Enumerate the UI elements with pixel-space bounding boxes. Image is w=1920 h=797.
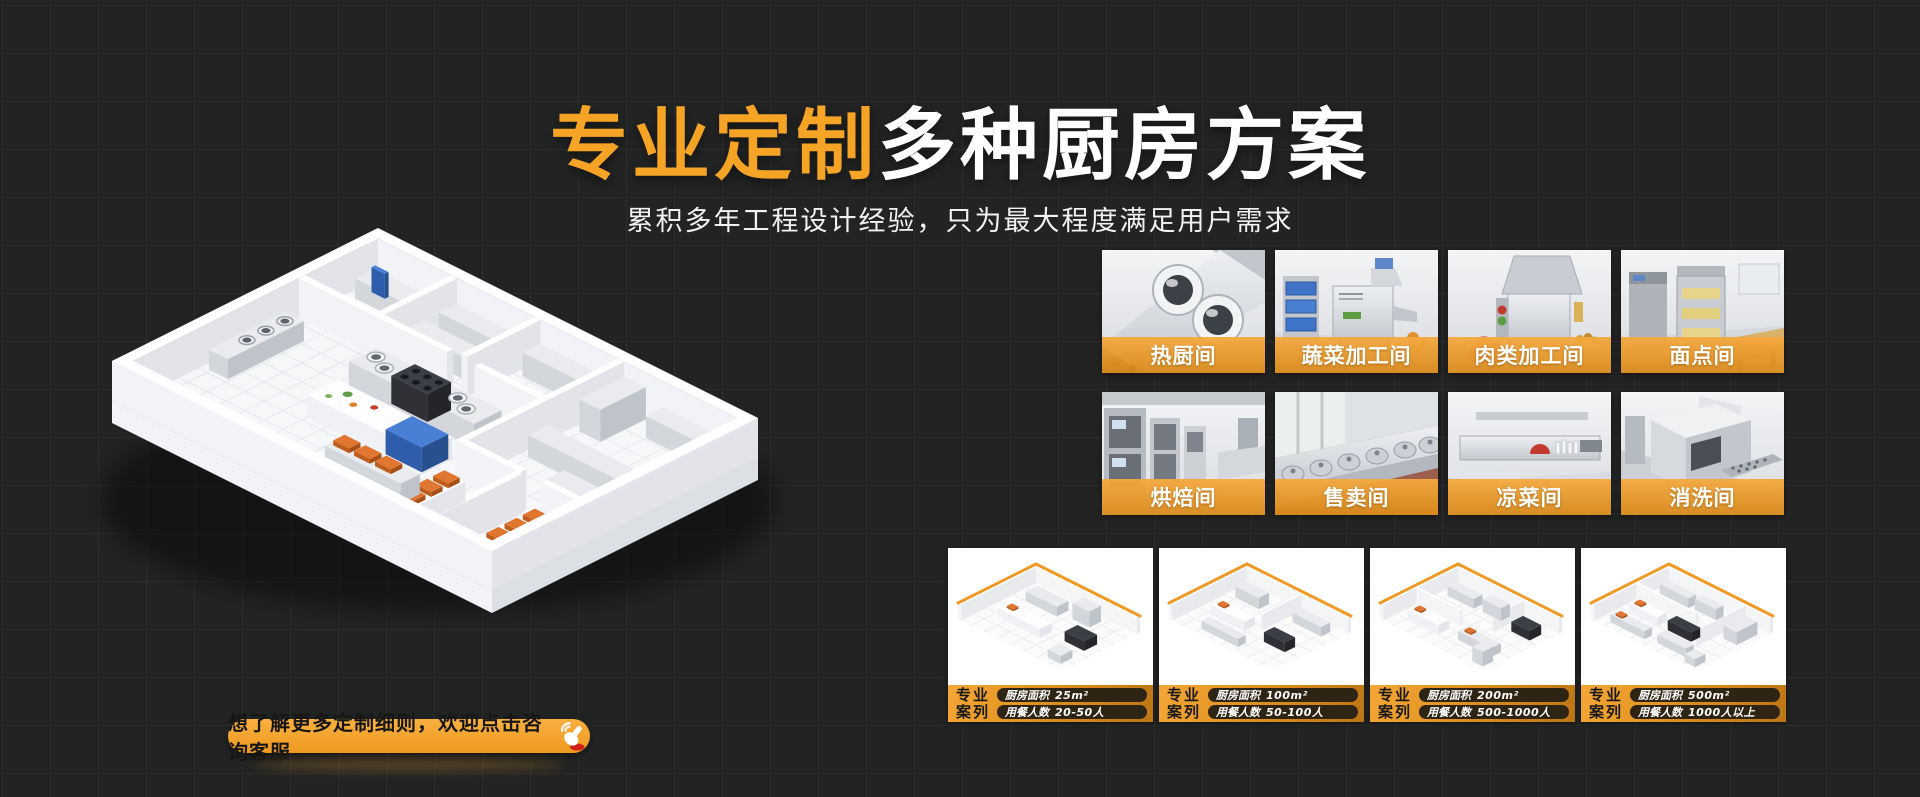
- case-badge: 专业案列: [1167, 687, 1201, 719]
- case-info-bar: 专业案列 厨房面积25m² 用餐人数20-50人: [948, 685, 1153, 722]
- room-tile-vegetable-processing[interactable]: 蔬菜加工间: [1275, 250, 1438, 373]
- case-pills: 厨房面积25m² 用餐人数20-50人: [997, 688, 1147, 719]
- case-diners-pill: 用餐人数500-1000人: [1419, 705, 1569, 719]
- case-floorplan-thumb: [1159, 548, 1364, 685]
- case-area-pill: 厨房面积100m²: [1208, 688, 1358, 702]
- case-diners-pill: 用餐人数20-50人: [997, 705, 1147, 719]
- case-card-100m2[interactable]: 专业案列 厨房面积100m² 用餐人数50-100人: [1159, 548, 1364, 722]
- case-info-bar: 专业案列 厨房面积100m² 用餐人数50-100人: [1159, 685, 1364, 722]
- room-tile-label: 烘焙间: [1102, 479, 1265, 515]
- case-area-pill: 厨房面积25m²: [997, 688, 1147, 702]
- consult-cta-label: 想了解更多定制细则，欢迎点击咨询客服: [228, 707, 552, 765]
- page-title: 专业定制多种厨房方案: [0, 104, 1920, 190]
- room-tile-dishwashing[interactable]: 消洗间: [1621, 392, 1784, 515]
- case-floorplan-thumb: [948, 548, 1153, 685]
- case-info-bar: 专业案列 厨房面积500m² 用餐人数1000人以上: [1581, 685, 1786, 722]
- case-badge: 专业案列: [956, 687, 990, 719]
- room-tile-label: 蔬菜加工间: [1275, 337, 1438, 373]
- room-tile-label: 消洗间: [1621, 479, 1784, 515]
- case-area-pill: 厨房面积200m²: [1419, 688, 1569, 702]
- case-card-500m2[interactable]: 专业案列 厨房面积500m² 用餐人数1000人以上: [1581, 548, 1786, 722]
- case-card-25m2[interactable]: 专业案列 厨房面积25m² 用餐人数20-50人: [948, 548, 1153, 722]
- case-diners-pill: 用餐人数1000人以上: [1630, 705, 1780, 719]
- room-tile-label: 售卖间: [1275, 479, 1438, 515]
- floorplan-3d-render: [78, 200, 848, 730]
- case-diners-pill: 用餐人数50-100人: [1208, 705, 1358, 719]
- page-title-highlight: 专业定制: [550, 101, 878, 191]
- case-card-200m2[interactable]: 专业案列 厨房面积200m² 用餐人数500-1000人: [1370, 548, 1575, 722]
- case-floorplan-thumb: [1370, 548, 1575, 685]
- room-tile-pastry[interactable]: 面点间: [1621, 250, 1784, 373]
- room-tile-label: 面点间: [1621, 337, 1784, 373]
- case-pills: 厨房面积100m² 用餐人数50-100人: [1208, 688, 1358, 719]
- room-tile-cold-dish[interactable]: 凉菜间: [1448, 392, 1611, 515]
- consult-cta-button[interactable]: 想了解更多定制细则，欢迎点击咨询客服: [228, 719, 590, 753]
- case-pills: 厨房面积200m² 用餐人数500-1000人: [1419, 688, 1569, 719]
- case-badge: 专业案列: [1589, 687, 1623, 719]
- room-tile-meat-processing[interactable]: 肉类加工间: [1448, 250, 1611, 373]
- case-cards-row: 专业案列 厨房面积25m² 用餐人数20-50人 专业案列 厨房面积100m² …: [948, 548, 1786, 722]
- click-hand-icon: [556, 720, 590, 752]
- kitchen-floorplan-illustration: [78, 200, 848, 730]
- case-badge: 专业案列: [1378, 687, 1412, 719]
- room-tile-label: 凉菜间: [1448, 479, 1611, 515]
- case-info-bar: 专业案列 厨房面积200m² 用餐人数500-1000人: [1370, 685, 1575, 722]
- page-title-rest: 多种厨房方案: [878, 101, 1370, 191]
- case-pills: 厨房面积500m² 用餐人数1000人以上: [1630, 688, 1780, 719]
- hero-banner: 专业定制多种厨房方案 累积多年工程设计经验，只为最大程度满足用户需求: [0, 0, 1920, 797]
- room-tile-baking[interactable]: 烘焙间: [1102, 392, 1265, 515]
- room-tile-label: 肉类加工间: [1448, 337, 1611, 373]
- case-area-pill: 厨房面积500m²: [1630, 688, 1780, 702]
- room-tile-selling[interactable]: 售卖间: [1275, 392, 1438, 515]
- room-tile-label: 热厨间: [1102, 337, 1265, 373]
- case-floorplan-thumb: [1581, 548, 1786, 685]
- room-tiles-grid: 热厨间 蔬菜加: [1102, 250, 1784, 515]
- room-tile-hot-kitchen[interactable]: 热厨间: [1102, 250, 1265, 373]
